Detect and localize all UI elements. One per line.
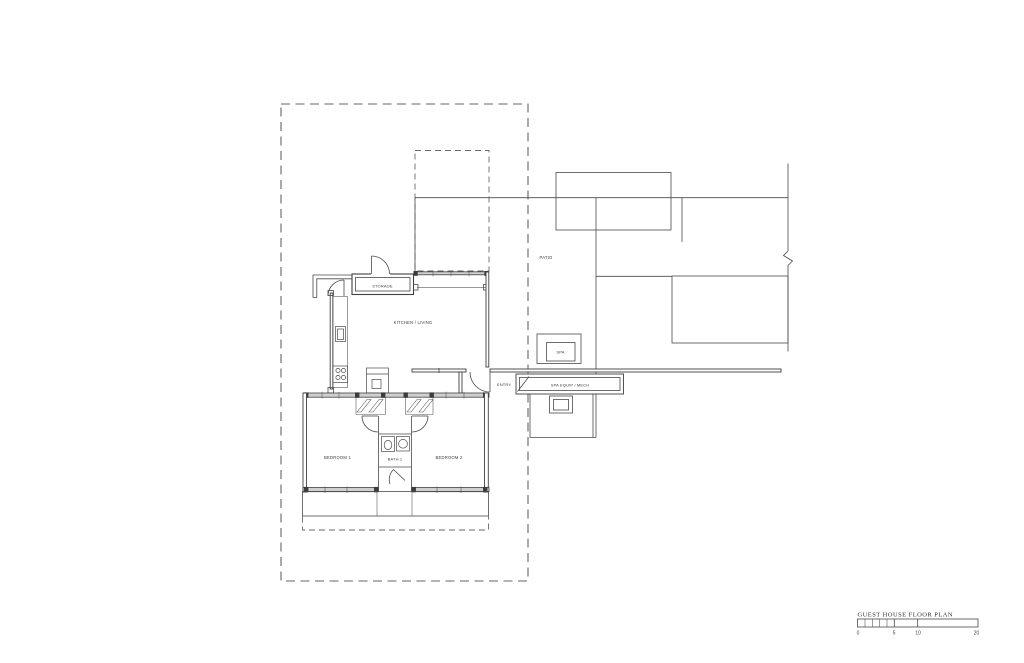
- spa-equip-label: SPA EQUIP / MECH: [551, 383, 589, 388]
- bathroom: [379, 416, 412, 488]
- scale-bar: 0 5 10 20: [857, 619, 980, 637]
- kitchen-living-label: KITCHEN / LIVING: [394, 320, 433, 325]
- main-house-outline: [415, 164, 793, 352]
- storage-label: STORAGE: [372, 284, 393, 289]
- floor-plan-drawing: PATIO SPA SPA EQUIP / MECH ENTRY: [0, 0, 1024, 663]
- spa-equipment-room: SPA EQUIP / MECH: [516, 374, 624, 394]
- scale-10: 10: [915, 631, 921, 637]
- spa-label: SPA: [556, 350, 564, 355]
- kitchen-counter: [333, 297, 348, 388]
- bedroom-south-wall: [303, 486, 489, 493]
- spa-area: SPA SPA EQUIP / MECH ENTRY: [497, 334, 624, 413]
- break-line: [784, 164, 793, 352]
- bedroom-wing: BEDROOM 1 BATH 1 BEDROOM 2: [303, 392, 490, 516]
- entry-label: ENTRY: [497, 382, 511, 387]
- toilet-fixture: [382, 437, 395, 452]
- bedroom2-door: [412, 416, 428, 432]
- sink-fixture-bath: [397, 437, 410, 452]
- title-block: GUEST HOUSE FLOOR PLAN 0 5 10 20: [857, 612, 980, 637]
- stove-fixture: [333, 366, 348, 383]
- scale-5: 5: [893, 631, 896, 637]
- scale-0: 0: [857, 631, 860, 637]
- hall-closet-door: [389, 470, 405, 485]
- bedroom-north-wall: [303, 392, 489, 399]
- storage-door: [372, 256, 390, 274]
- floor-plan-sheet: PATIO SPA SPA EQUIP / MECH ENTRY: [0, 0, 1024, 663]
- sink-fixture: [336, 327, 346, 342]
- equipment-pad: [550, 396, 573, 413]
- north-window-wall: [414, 271, 489, 277]
- closet-bedroom2: [406, 398, 434, 415]
- property-boundary: [281, 104, 528, 581]
- storage-room: STORAGE: [352, 256, 414, 295]
- bedroom2-label: BEDROOM 2: [436, 455, 463, 460]
- bedroom1-door: [362, 416, 378, 432]
- scale-20: 20: [974, 631, 980, 637]
- entry-door: [470, 372, 490, 392]
- patio-label: PATIO: [540, 255, 553, 260]
- deck: [303, 492, 489, 517]
- drawing-title: GUEST HOUSE FLOOR PLAN: [858, 612, 954, 619]
- closet-bedroom1: [356, 398, 386, 415]
- bath1-label: BATH 1: [388, 457, 403, 462]
- kitchen-island: [367, 368, 389, 393]
- bedroom1-label: BEDROOM 1: [324, 455, 351, 460]
